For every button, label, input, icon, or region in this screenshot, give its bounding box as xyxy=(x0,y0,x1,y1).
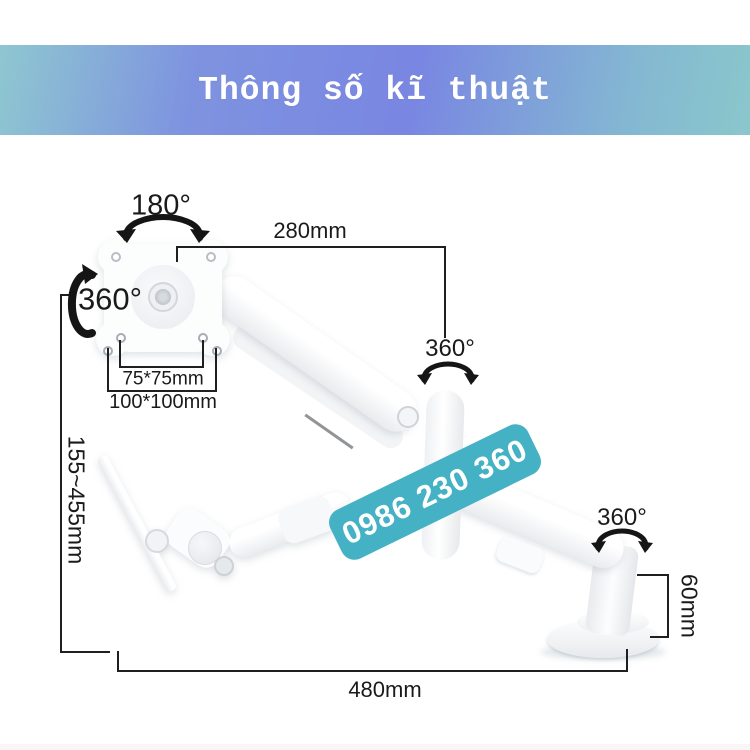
dim-100-left xyxy=(107,348,109,392)
dim-280-line xyxy=(176,246,446,248)
dim-480-tick-left xyxy=(117,651,119,672)
dim-75-left xyxy=(119,340,121,368)
vesa-hole xyxy=(212,346,222,356)
label-rotation-elbow-360: 360° xyxy=(425,337,475,361)
page-title: Thông số kĩ thuật xyxy=(198,72,552,109)
elbow-screw xyxy=(397,406,419,428)
dim-480-line xyxy=(117,670,628,672)
vesa-screw xyxy=(155,289,171,305)
vesa-hole xyxy=(116,333,126,343)
rotation-arrow-elbow-icon xyxy=(416,361,480,385)
bottom-strip xyxy=(0,744,750,750)
vesa-hole xyxy=(206,252,216,262)
dim-280-tick xyxy=(176,246,178,262)
dim-75-right xyxy=(202,340,204,368)
dim-60-line xyxy=(667,574,669,638)
dim-60-tick-bottom xyxy=(650,636,669,638)
upper-arm xyxy=(205,268,426,440)
head-hinge xyxy=(145,529,169,553)
dim-480-tick-right xyxy=(626,649,628,672)
header-banner: Thông số kĩ thuật xyxy=(0,45,750,135)
label-base-height-60mm: 60mm xyxy=(678,574,701,638)
rotation-arrow-base-icon xyxy=(589,528,655,554)
label-rotation-180: 180° xyxy=(131,192,191,221)
dim-280-drop xyxy=(444,246,446,338)
label-rotation-base-360: 360° xyxy=(597,506,647,530)
label-reach-480mm: 480mm xyxy=(348,679,421,701)
label-vesa-75mm: 75*75mm xyxy=(122,370,203,389)
dim-60-tick-top xyxy=(637,574,669,576)
head-knob xyxy=(214,556,234,576)
label-vesa-100mm: 100*100mm xyxy=(109,392,217,412)
label-rotation-vesa-360: 360° xyxy=(78,284,142,315)
dim-height-line xyxy=(60,294,62,653)
dim-height-tick-bottom xyxy=(60,651,110,653)
label-height-range: 155~455mm xyxy=(65,436,88,565)
vesa-hole xyxy=(111,252,121,262)
dim-100-right xyxy=(215,348,217,392)
head-plate-edge xyxy=(96,454,177,593)
label-length-280mm: 280mm xyxy=(273,220,346,242)
